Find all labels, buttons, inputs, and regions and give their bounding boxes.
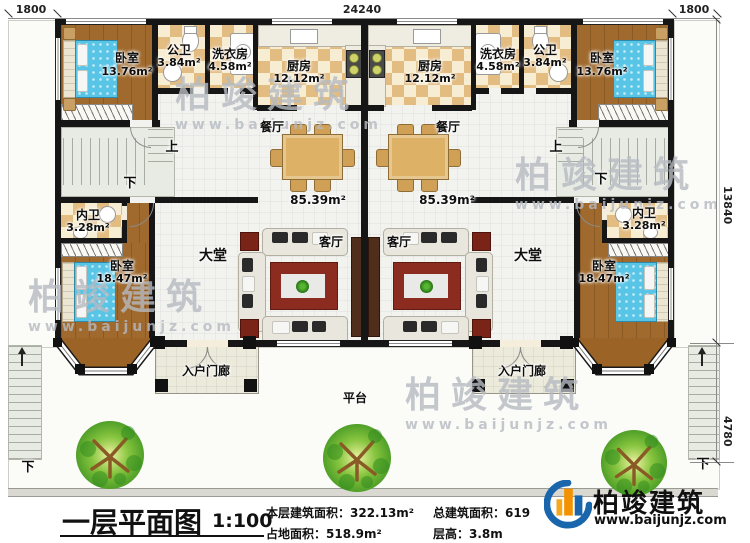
dining-chair xyxy=(397,178,414,192)
room-label-dining-right: 餐厅 xyxy=(436,121,460,133)
door-opening xyxy=(489,88,501,94)
wall-segment xyxy=(149,197,155,343)
staircase-left xyxy=(61,127,175,197)
room-label-bath-public-right: 公卫 xyxy=(533,44,557,56)
wall-segment xyxy=(57,238,127,243)
sofa-cushion xyxy=(272,321,290,334)
room-label-kitchen-right: 厨房 xyxy=(418,60,442,72)
window xyxy=(583,18,663,25)
sofa-cushion xyxy=(476,276,489,292)
room-label-hall-left: 大堂 xyxy=(199,249,227,263)
room-label-porch-right: 入户门廊 xyxy=(498,365,546,377)
room-area-kitchen-right: 12.12m² xyxy=(404,73,455,84)
room-label-platform: 平台 xyxy=(343,392,367,404)
stove-burner xyxy=(349,53,359,63)
stair-label-down-right: 下 xyxy=(594,173,607,186)
room-area-bedroom-top-left: 13.76m² xyxy=(101,66,152,77)
stove-burner xyxy=(372,53,382,63)
sofa-cushion xyxy=(242,276,255,292)
stove-burner xyxy=(372,65,382,75)
nightstand xyxy=(63,98,76,111)
room-label-bedroom-top-left: 卧室 xyxy=(115,52,139,64)
window xyxy=(668,268,674,320)
sofa-cushion xyxy=(292,321,308,332)
porch-post xyxy=(243,336,256,349)
porch-post xyxy=(561,379,574,392)
stair-direction-line xyxy=(21,352,23,366)
dim-top-center: 24240 xyxy=(343,3,381,16)
porch-post xyxy=(155,379,168,392)
room-label-bedroom-top-right: 卧室 xyxy=(590,52,614,64)
dimension-tick xyxy=(53,9,61,17)
sofa-cushion xyxy=(441,232,457,243)
stair-arrow xyxy=(18,347,26,354)
sofa-cushion xyxy=(421,321,437,332)
wardrobe xyxy=(608,243,670,257)
window xyxy=(272,18,332,25)
wall-segment xyxy=(253,18,258,110)
room-area-bedroom-master-right: 18.47m² xyxy=(578,273,629,284)
toilet-tank xyxy=(534,26,547,34)
sofa-cushion xyxy=(312,321,326,332)
dining-chair xyxy=(341,149,355,167)
door-opening xyxy=(524,88,536,94)
room-label-bedroom-master-right: 卧室 xyxy=(592,260,616,272)
room-area-bath-public-left: 3.84m² xyxy=(157,57,200,68)
sofa-cushion xyxy=(476,294,487,308)
window xyxy=(66,18,146,25)
stat-floor-area: 本层建筑面积：322.13m² xyxy=(266,504,414,521)
door-opening xyxy=(228,88,240,94)
nightstand xyxy=(655,27,668,40)
room-label-living-right: 客厅 xyxy=(387,236,411,248)
bed-headboard xyxy=(655,262,669,322)
wall-segment xyxy=(345,105,361,111)
toilet-tank xyxy=(184,26,197,34)
room-label-laundry-right: 洗衣房 xyxy=(480,48,516,60)
stat-footprint: 占地面积：518.9m² xyxy=(266,525,382,542)
wall-segment xyxy=(122,197,127,243)
sofa-cushion xyxy=(292,232,308,243)
window xyxy=(668,38,674,100)
pillow xyxy=(643,44,654,66)
terrace-right xyxy=(674,20,720,349)
title-underline xyxy=(60,535,264,537)
sofa-cushion xyxy=(421,232,437,243)
dimension-line-top xyxy=(8,18,720,19)
door-opening xyxy=(193,88,205,94)
tree xyxy=(74,419,146,491)
room-label-bath-ensuite-left: 内卫 xyxy=(76,209,100,221)
porch-post xyxy=(472,379,485,392)
bay-window-right xyxy=(570,338,676,378)
floor-plan-canvas: 柏竣建筑 www.baijunjz.com 柏竣建筑 www.baijunjz.… xyxy=(0,0,750,543)
room-area-bath-ensuite-left: 3.28m² xyxy=(66,222,109,233)
dimension-tick xyxy=(668,9,676,17)
bay-window-left xyxy=(53,338,159,378)
dim-top-left: 1800 xyxy=(16,3,47,16)
door-opening xyxy=(602,206,607,220)
window xyxy=(389,340,452,347)
dimension-tick xyxy=(4,9,12,17)
room-label-laundry-left: 洗衣房 xyxy=(212,48,248,60)
staircase-right xyxy=(556,127,670,197)
wall-segment xyxy=(205,18,210,93)
pillow xyxy=(77,44,88,66)
kitchen-sink xyxy=(290,29,318,44)
room-area-bedroom-top-right: 13.76m² xyxy=(576,66,627,77)
stair-label-down-left: 下 xyxy=(123,177,136,190)
wall-segment xyxy=(602,197,607,243)
stat-total-area: 总建筑面积：619 xyxy=(433,504,530,521)
wall-segment xyxy=(432,105,472,111)
stair-arrow xyxy=(698,347,706,354)
dimension-line-right xyxy=(716,20,717,462)
entry-door-opening xyxy=(500,340,541,347)
dimension-extension xyxy=(690,462,734,463)
window xyxy=(55,268,61,320)
porch-post xyxy=(469,336,482,349)
pillow xyxy=(76,294,87,318)
stair-label-down-exterior-left: 下 xyxy=(21,461,34,474)
dim-top-right: 1800 xyxy=(679,3,710,16)
wall-segment xyxy=(574,197,580,343)
sofa-cushion xyxy=(242,258,253,272)
unit-area-right: 85.39m² xyxy=(419,194,475,206)
side-table xyxy=(240,232,259,251)
sofa-cushion xyxy=(476,258,487,272)
wall-segment xyxy=(471,18,476,110)
dim-right-upper: 13840 xyxy=(721,186,734,224)
pillow xyxy=(76,266,87,290)
room-area-bath-ensuite-right: 3.28m² xyxy=(622,220,665,231)
brand-logo-icon xyxy=(544,480,592,530)
room-area-laundry-right: 4.58m² xyxy=(476,61,519,72)
room-area-bath-public-right: 3.84m² xyxy=(523,57,566,68)
side-table xyxy=(472,232,491,251)
stair-label-up-right: 上 xyxy=(549,141,562,154)
room-label-bath-ensuite-right: 内卫 xyxy=(632,207,656,219)
dining-chair xyxy=(421,178,438,192)
wall-segment xyxy=(471,88,571,94)
stair-label-down-exterior-right: 下 xyxy=(696,458,709,471)
nightstand xyxy=(655,98,668,111)
pillow xyxy=(644,266,655,290)
dining-table xyxy=(282,134,343,180)
wall-segment xyxy=(152,18,158,127)
wall-segment xyxy=(368,105,384,111)
potted-plant xyxy=(420,280,433,293)
terrace-left xyxy=(8,20,57,349)
window xyxy=(277,340,340,347)
dining-chair xyxy=(314,178,331,192)
room-label-bath-public-left: 公卫 xyxy=(167,44,191,56)
kitchen-sink xyxy=(413,29,441,44)
room-label-living-left: 客厅 xyxy=(319,236,343,248)
dining-table xyxy=(388,134,449,180)
dimension-extension xyxy=(690,343,734,344)
stair-direction-line xyxy=(701,352,703,366)
wardrobe xyxy=(61,243,123,257)
wall-segment xyxy=(602,238,672,243)
dining-chair xyxy=(447,149,461,167)
tv-cabinet xyxy=(368,237,380,337)
sofa-cushion xyxy=(272,232,288,243)
room-label-dining-left: 餐厅 xyxy=(260,121,284,133)
stat-height: 层高：3.8m xyxy=(433,525,503,542)
door-opening xyxy=(130,120,152,127)
room-label-kitchen-left: 厨房 xyxy=(287,60,311,72)
sofa-cushion xyxy=(242,294,253,308)
dim-right-lower: 4780 xyxy=(721,416,734,447)
sofa-cushion xyxy=(441,321,459,334)
room-area-kitchen-left: 12.12m² xyxy=(273,73,324,84)
pillow xyxy=(644,294,655,318)
potted-plant xyxy=(296,280,309,293)
dining-chair xyxy=(290,178,307,192)
pillow xyxy=(77,70,88,92)
stove-burner xyxy=(349,65,359,75)
unit-area-left: 85.39m² xyxy=(290,194,346,206)
bed-headboard xyxy=(654,40,668,98)
sofa-cushion xyxy=(403,321,417,332)
wall-segment xyxy=(257,105,297,111)
wall-segment xyxy=(158,88,258,94)
door-opening xyxy=(577,120,599,127)
nightstand xyxy=(63,27,76,40)
door-opening xyxy=(122,206,127,220)
room-area-bedroom-master-left: 18.47m² xyxy=(96,273,147,284)
porch-post xyxy=(244,379,257,392)
window xyxy=(397,18,457,25)
room-label-bedroom-master-left: 卧室 xyxy=(110,260,134,272)
wall-segment xyxy=(471,197,672,203)
wall-segment xyxy=(57,197,258,203)
room-label-hall-right: 大堂 xyxy=(514,249,542,263)
exterior-stairs-left xyxy=(8,345,42,460)
window xyxy=(55,38,61,100)
entry-door-opening xyxy=(187,340,228,347)
room-area-laundry-left: 4.58m² xyxy=(208,61,251,72)
plan-scale: 1:100 xyxy=(212,510,272,532)
tree xyxy=(321,422,393,494)
wall-segment-center xyxy=(361,18,368,347)
stair-label-up-left: 上 xyxy=(165,141,178,154)
pillow xyxy=(643,70,654,92)
brand-url: www.baijunjz.com xyxy=(594,513,727,528)
room-label-porch-left: 入户门廊 xyxy=(182,365,230,377)
